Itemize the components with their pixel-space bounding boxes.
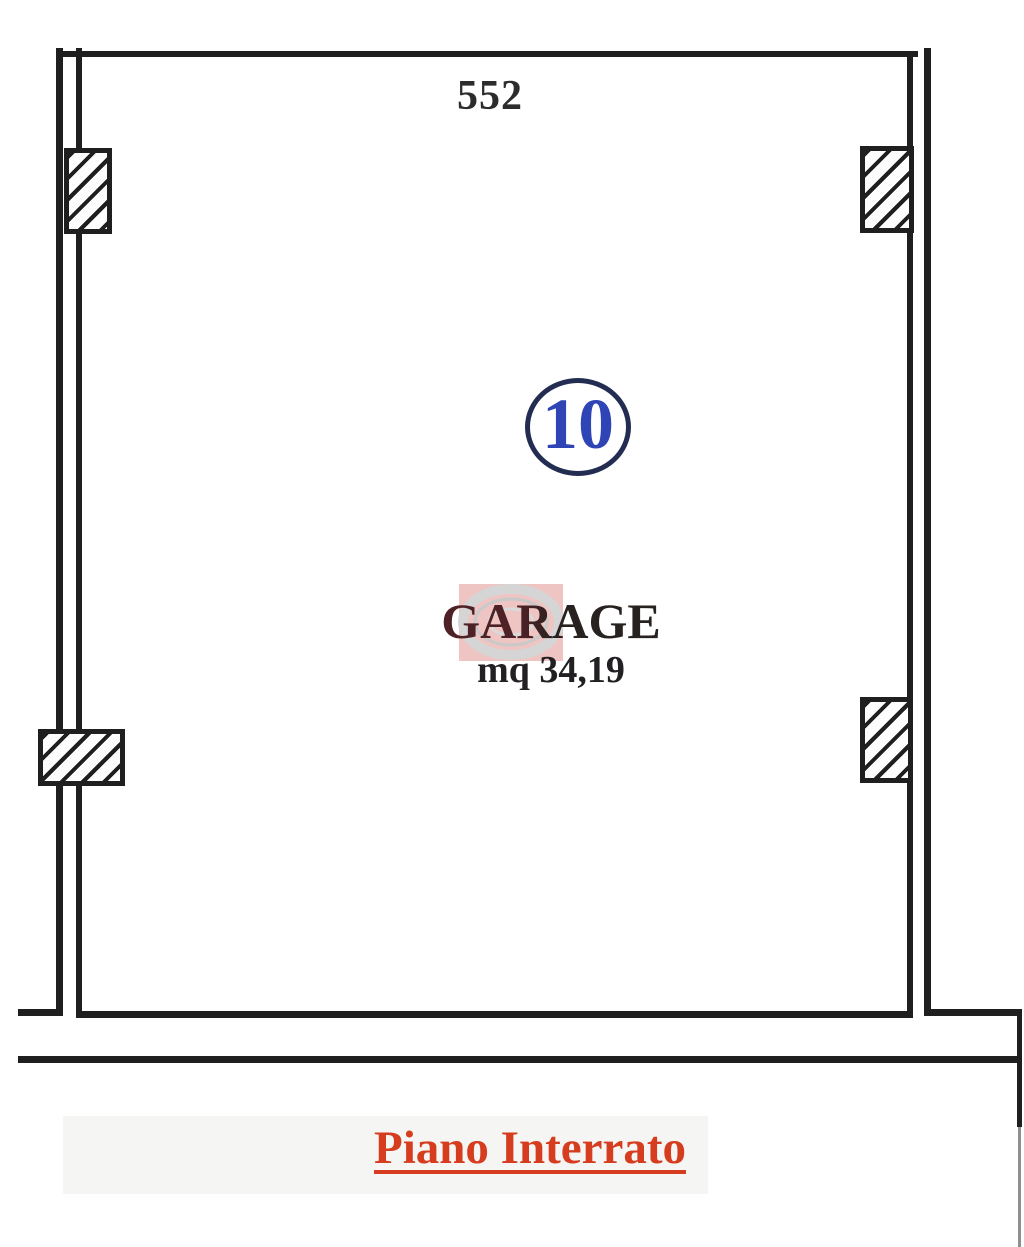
right-edge-line [1017,1009,1022,1127]
floor-plan-page: 552 10 GARAGE mq 34,19 Piano Interrato [0,0,1024,1247]
room-area-label: mq 34,19 [401,648,701,692]
unit-number-circle: 10 [525,378,631,476]
wall-top [56,51,918,57]
wall-foot-left [18,1009,58,1016]
wall-bottom [76,1011,913,1018]
pillar-top-right [860,146,914,233]
right-edge-line-faded [1018,1127,1021,1247]
wall-foot-right [924,1009,1022,1016]
unit-number-label: 10 [542,388,614,466]
dimension-label-top: 552 [440,72,540,120]
ground-line [18,1056,1022,1063]
pillar-mid-right [860,697,913,783]
room-name-label: GARAGE [401,592,701,650]
wall-right-outer [924,48,931,1016]
pillar-mid-left [38,729,125,786]
wall-left-outer [56,48,63,1016]
pillar-top-left [64,148,112,234]
floor-title: Piano Interrato [280,1121,780,1175]
